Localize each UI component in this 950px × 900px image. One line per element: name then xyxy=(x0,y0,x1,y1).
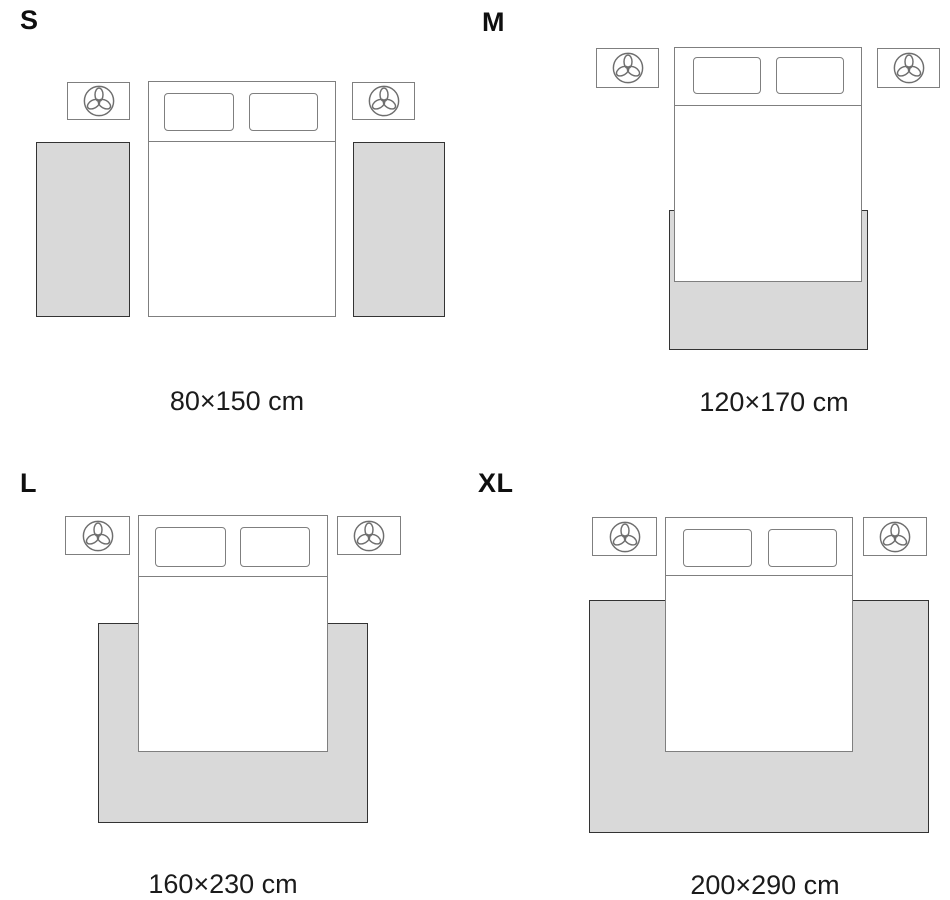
nightstand-left xyxy=(67,82,130,120)
nightstand-right xyxy=(863,517,927,556)
rug-right xyxy=(353,142,445,317)
size-caption: 120×170 cm xyxy=(699,389,848,416)
size-label: L xyxy=(20,470,37,497)
size-caption: 200×290 cm xyxy=(690,872,839,899)
plant-icon xyxy=(878,520,912,554)
size-caption: 80×150 cm xyxy=(170,388,304,415)
pillow-right xyxy=(768,529,837,567)
size-option-s: S 80×150 cm xyxy=(0,0,475,450)
nightstand-right xyxy=(352,82,415,120)
size-label: S xyxy=(20,7,39,34)
nightstand-left xyxy=(65,516,130,555)
bed xyxy=(138,515,328,752)
pillow-right xyxy=(240,527,310,567)
size-option-m: M 120×170 cm xyxy=(475,0,950,450)
rug-left xyxy=(36,142,130,317)
pillow-left xyxy=(683,529,752,567)
nightstand-left xyxy=(596,48,659,88)
bed xyxy=(665,517,853,752)
plant-icon xyxy=(82,84,116,118)
nightstand-left xyxy=(592,517,657,556)
plant-icon xyxy=(352,519,386,553)
size-option-l: L 160×230 cm xyxy=(0,450,475,900)
pillow-right xyxy=(776,57,844,94)
plant-icon xyxy=(611,51,645,85)
plant-icon xyxy=(81,519,115,553)
pillow-left xyxy=(693,57,761,94)
plant-icon xyxy=(892,51,926,85)
pillow-left xyxy=(164,93,234,131)
size-caption: 160×230 cm xyxy=(148,871,297,898)
pillow-right xyxy=(249,93,318,131)
bed xyxy=(674,47,862,282)
bed xyxy=(148,81,336,317)
pillow-left xyxy=(155,527,226,567)
size-label: XL xyxy=(478,470,514,497)
plant-icon xyxy=(367,84,401,118)
plant-icon xyxy=(608,520,642,554)
size-label: M xyxy=(482,9,505,36)
nightstand-right xyxy=(877,48,940,88)
rug-size-guide: S 80×150 cm M xyxy=(0,0,950,900)
size-option-xl: XL 200×290 cm xyxy=(475,450,950,900)
nightstand-right xyxy=(337,516,401,555)
